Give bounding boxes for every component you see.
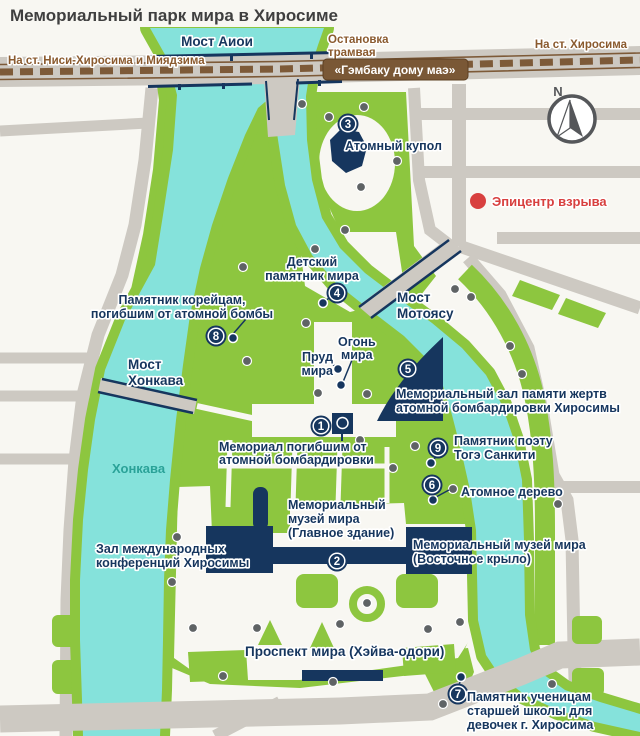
compass [549, 96, 595, 142]
peace-pond-label: Прудмира [301, 350, 334, 378]
svg-text:9: 9 [435, 443, 441, 455]
map-canvas: N [0, 0, 640, 736]
marker-8: 8 [206, 326, 227, 347]
peace-flame-label: Огоньмира [338, 335, 376, 362]
compass-north-label: N [553, 84, 562, 99]
tram-station-badge: «Гэмбаку дому маэ» [323, 59, 468, 80]
peace-boulevard-label: Проспект мира (Хэйва-одори) [245, 644, 444, 659]
memorial-hall-label: Мемориальный зал памяти жертватомной бом… [396, 387, 620, 415]
tram-station-badge-label: «Гэмбаку дому маэ» [335, 63, 456, 77]
svg-text:2: 2 [334, 556, 340, 568]
svg-text:4: 4 [334, 288, 341, 300]
svg-text:1: 1 [318, 421, 325, 433]
marker-3: 3 [338, 114, 359, 135]
svg-text:8: 8 [213, 331, 220, 343]
svg-text:7: 7 [455, 689, 461, 701]
boulevard-building [302, 670, 383, 681]
honkawa-river-label: Хонкава [112, 461, 166, 476]
svg-text:3: 3 [345, 119, 351, 131]
hiroshima-peace-park-map: N [0, 0, 640, 736]
svg-text:6: 6 [429, 480, 435, 492]
marker-2: 2 [327, 551, 348, 572]
map-title: Мемориальный парк мира в Хиросиме [10, 6, 338, 25]
direction-west-label: На ст. Ниси-Хиросима и Миядзима [8, 55, 205, 67]
marker-6: 6 [422, 475, 443, 496]
svg-text:5: 5 [405, 364, 412, 376]
marker-5: 5 [398, 359, 419, 380]
marker-1: 1 [311, 416, 332, 437]
direction-east-label: На ст. Хиросима [535, 39, 628, 51]
marker-9: 9 [428, 438, 449, 459]
atomic-dome-label: Атомный купол [345, 139, 442, 153]
marker-7: 7 [448, 684, 469, 705]
epicenter-dot [470, 193, 486, 209]
aioi-bridge-label: Мост Аиои [181, 34, 253, 49]
atomic-tree-label: Атомное дерево [461, 485, 563, 499]
cenotaph-label: Мемориал погибшим отатомной бомбардировк… [219, 440, 374, 467]
museum-pillar-building [253, 487, 268, 530]
marker-4: 4 [327, 283, 348, 304]
school-monument-label: Памятник ученицамстаршей школы длядевоче… [467, 690, 594, 732]
epicenter-label: Эпицентр взрыва [492, 194, 607, 209]
